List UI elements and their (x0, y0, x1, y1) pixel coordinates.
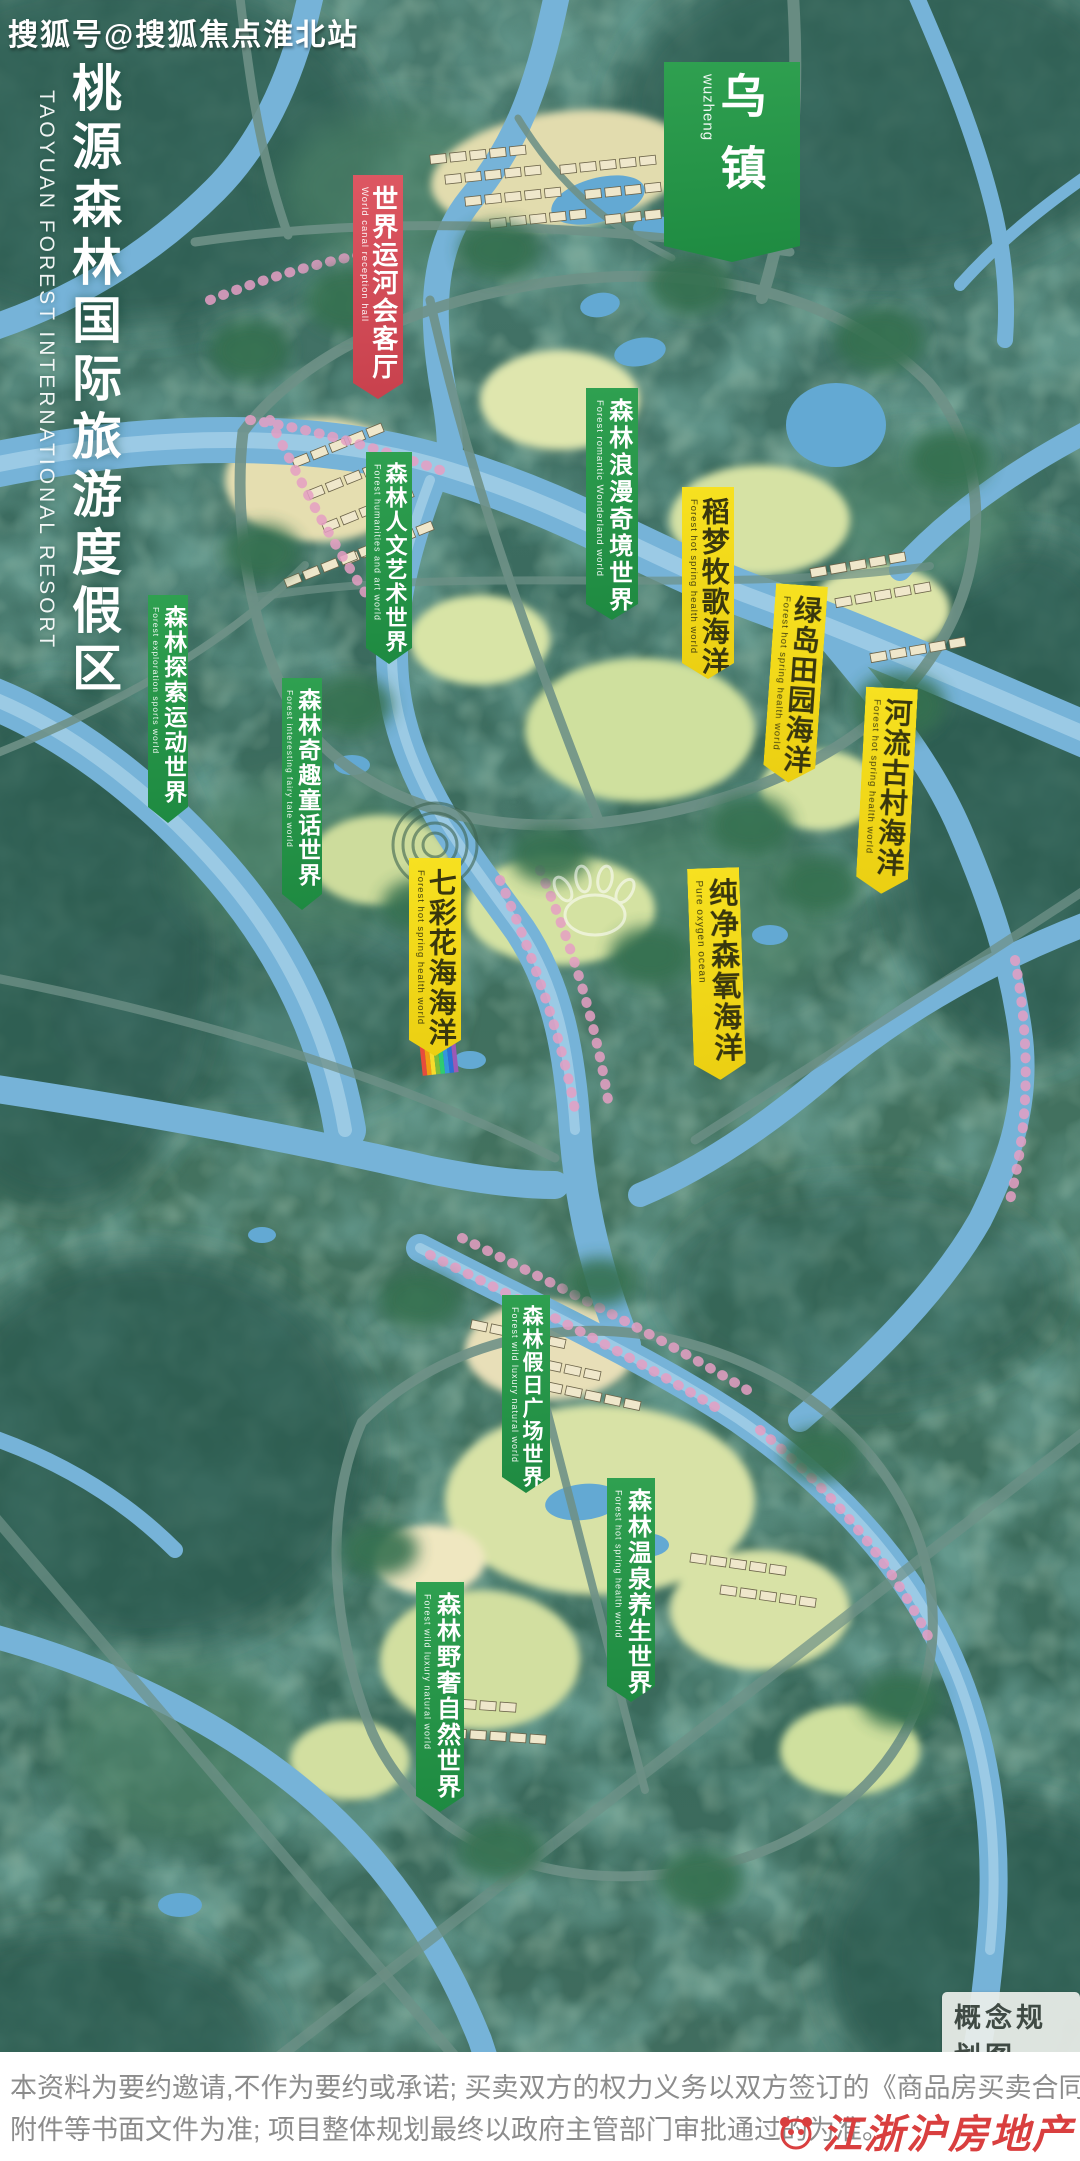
planning-map-page: 搜狐号@搜狐焦点淮北站 TAOYUAN FOREST INTERNATIONAL… (0, 0, 1080, 2161)
label-rice-dream-pastoral-ocean: Forest hot spring health world稻梦牧歌海洋 (682, 487, 734, 679)
label-en: Forest hot spring health world (614, 1490, 623, 1639)
label-river-ancient-village-ocean: Forest hot spring health world河流古村海洋 (855, 687, 918, 895)
label-en: Forest hot spring health world (688, 499, 698, 654)
label-pure-oxygen-ocean: Pure oxygen ocean纯净森氧海洋 (687, 867, 746, 1081)
label-colorful-flower-sea-ocean: Forest hot spring health world七彩花海海洋 (409, 858, 461, 1056)
label-en: Forest exploration sports world (151, 607, 160, 754)
label-cn: 森林浪漫奇境世界 (606, 398, 630, 614)
brand-watermark: 江浙沪房地产 (774, 2102, 1074, 2160)
label-forest-romantic-wonderland-world: Forest romantic Wonderland world森林浪漫奇境世界 (586, 388, 638, 620)
label-cn: 七彩花海海洋 (427, 868, 455, 1048)
label-forest-hot-spring-health-world: Forest hot spring health world森林温泉养生世界 (607, 1478, 655, 1702)
label-en: Forest wild luxury natural world (510, 1307, 519, 1463)
label-en: Forest hot spring health world (415, 870, 425, 1025)
label-forest-exploration-sports-world: Forest exploration sports world森林探索运动世界 (148, 595, 188, 823)
label-forest-holiday-plaza-world: Forest wild luxury natural world森林假日广场世界 (502, 1295, 550, 1493)
label-cn: 森林温泉养生世界 (625, 1488, 649, 1696)
label-cn: 乌镇 (718, 72, 764, 216)
disclaimer-line-2: 附件等书面文件为准; 项目整体规划最终以政府主管部门审批通过的为准。 (10, 2108, 889, 2147)
label-forest-fairy-tale-world: Forest interesting fairy tale world森林奇趣童… (282, 678, 322, 910)
label-en: Forest humanities and art world (373, 464, 382, 621)
label-world-canal-hall: World canal reception hall世界运河会客厅 (353, 175, 403, 399)
label-cn: 森林探索运动世界 (162, 605, 185, 805)
disclaimer-bar: 本资料为要约邀请,不作为要约或承诺; 买卖双方的权力义务以双方签订的《商品房买卖… (0, 2052, 1080, 2161)
sohu-watermark: 搜狐号@搜狐焦点淮北站 (8, 10, 359, 54)
label-en: World canal reception hall (359, 187, 369, 322)
label-cn: 稻梦牧歌海洋 (700, 497, 728, 677)
label-forest-wild-luxury-natural-world: Forest wild luxury natural world森林野奢自然世界 (416, 1582, 464, 1812)
panda-logo-icon (774, 2109, 818, 2153)
brand-watermark-text: 江浙沪房地产 (822, 2102, 1074, 2160)
label-cn: 森林假日广场世界 (521, 1305, 542, 1489)
label-en: Forest romantic Wonderland world (594, 400, 604, 577)
map-illustration (0, 0, 1080, 2161)
label-wuzhen: wuzheng乌镇 (664, 62, 800, 262)
label-cn: 森林野奢自然世界 (434, 1592, 458, 1800)
label-en: wuzheng (701, 74, 716, 141)
label-forest-humanities-art-world: Forest humanities and art world森林人文艺术世界 (366, 452, 412, 664)
label-cn: 森林人文艺术世界 (384, 462, 406, 654)
label-cn: 世界运河会客厅 (371, 185, 397, 381)
resort-title-en: TAOYUAN FOREST INTERNATIONAL RESORT (36, 90, 57, 650)
disclaimer-line-1: 本资料为要约邀请,不作为要约或承诺; 买卖双方的权力义务以双方签订的《商品房买卖… (10, 2066, 1080, 2105)
label-en: Forest wild luxury natural world (423, 1594, 432, 1750)
resort-title-cn: 桃源森林国际旅游度假区 (68, 62, 118, 700)
label-cn: 森林奇趣童话世界 (296, 688, 319, 888)
label-cn: 纯净森氧海洋 (705, 877, 740, 1064)
label-en: Pure oxygen ocean (693, 880, 707, 983)
label-en: Forest interesting fairy tale world (285, 690, 294, 848)
